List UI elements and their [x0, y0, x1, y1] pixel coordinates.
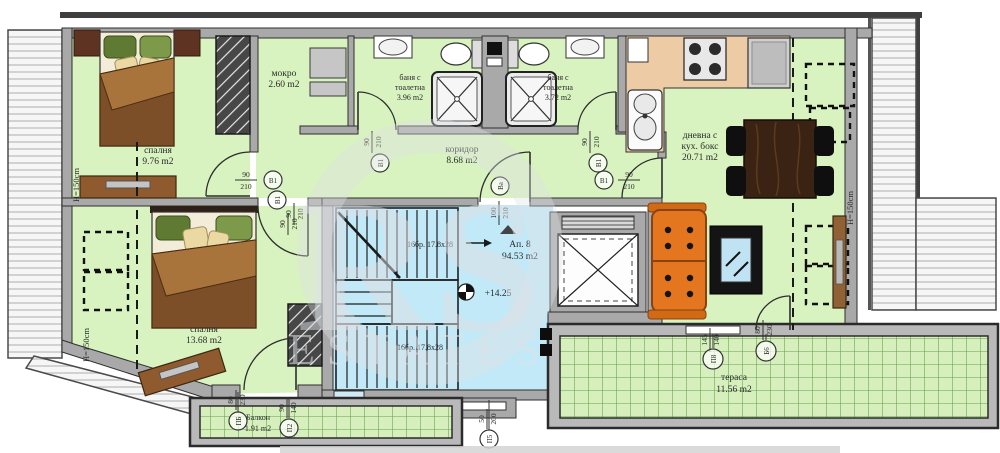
bedroom1-dresser-tv: [106, 181, 150, 188]
svg-text:Б6: Б6: [763, 347, 771, 355]
svg-text:90: 90: [278, 220, 287, 228]
svg-text:П5: П5: [486, 434, 494, 443]
bath1-basin: [379, 39, 407, 55]
svg-text:140: 140: [289, 402, 298, 414]
bedroom2-area: 13.68 m2: [186, 336, 222, 346]
height-note-bedroom2: H=150cm: [81, 328, 91, 362]
svg-text:80: 80: [753, 326, 762, 334]
duct-slot: [487, 58, 502, 66]
wall-bath2-living: [618, 36, 626, 132]
mokro-shelf-b: [310, 82, 346, 96]
kitchen-cabinet: [628, 38, 648, 62]
terrace: [540, 324, 998, 428]
bedroom1-area: 9.76 m2: [142, 157, 173, 167]
mokro-shelves: [310, 48, 346, 96]
svg-text:200: 200: [489, 413, 498, 425]
left-eave-band: [8, 30, 62, 358]
svg-text:230: 230: [765, 324, 774, 336]
mokro-label: мокро: [272, 69, 297, 79]
eave-edge-line: [868, 18, 871, 310]
svg-text:В1: В1: [600, 177, 609, 185]
stove: [684, 38, 726, 80]
mokro-shelf-a: [310, 48, 346, 78]
bedroom2-label: спалня: [190, 325, 218, 335]
terrace-label: тераса: [721, 373, 748, 383]
svg-text:90: 90: [625, 170, 633, 179]
height-note-bedroom1: H=150cm: [71, 168, 81, 202]
floor-plan-page: спалня 9.76 m2 мокро 2.60 m2 баня с тоал…: [0, 0, 1000, 453]
svg-text:90: 90: [242, 170, 250, 179]
bath1-label-2: тоалетна: [395, 83, 425, 92]
svg-text:80: 80: [226, 396, 235, 404]
bath2-label-1: баня с: [547, 73, 569, 82]
terrace-area: 11.56 m2: [716, 385, 752, 395]
fridge-inner: [752, 42, 786, 84]
mokro-area: 2.60 m2: [268, 80, 299, 90]
wall-bedrooms-divider-a: [62, 198, 258, 206]
svg-text:ПБ: ПБ: [235, 416, 243, 425]
living-label-1: дневна с: [683, 131, 718, 141]
height-note-living: H=150cm: [845, 191, 855, 225]
svg-text:145: 145: [700, 334, 709, 346]
right-eave-band: [872, 18, 916, 310]
right-eave-wide-band: [916, 198, 996, 310]
bath2-label-2: тоалетна: [543, 83, 573, 92]
balcony-label: Балкон: [246, 413, 271, 422]
wall-bath-top-a: [300, 126, 358, 134]
sink-faucet: [643, 114, 648, 119]
svg-text:П8: П8: [710, 354, 718, 363]
svg-text:П2: П2: [286, 423, 294, 432]
sideboard-panel: [836, 240, 843, 284]
bath1-label-1: баня с: [399, 73, 421, 82]
sink-bowl-bottom: [634, 116, 656, 140]
bath1-area: 3.96 m2: [397, 93, 423, 102]
bath1-drain: [455, 97, 460, 102]
svg-text:210: 210: [592, 136, 601, 148]
watermark-subtitle: ESTATES: [288, 325, 552, 374]
bedroom1-label: спалня: [144, 146, 172, 156]
elevator-door: [562, 216, 634, 229]
top-boundary-line: [60, 12, 922, 18]
bath2-basin: [571, 39, 599, 55]
bath2-toilet-tank: [508, 40, 518, 68]
bed1-nightstand-left: [74, 30, 100, 56]
terrace-window-p8: [686, 326, 740, 334]
svg-text:230: 230: [238, 394, 247, 406]
wall-bedroom1-mokro: [250, 36, 258, 152]
sink-bowl-top: [634, 94, 656, 114]
svg-text:В1: В1: [595, 158, 603, 167]
svg-text:В1: В1: [269, 177, 278, 185]
bath1-toilet-tank: [472, 40, 482, 68]
svg-text:210: 210: [240, 182, 252, 191]
bed1-pillow-right: [140, 36, 171, 58]
bath2-drain: [529, 97, 534, 102]
floor-plan-drawing: спалня 9.76 m2 мокро 2.60 m2 баня с тоал…: [0, 0, 1000, 453]
watermark-bottom-strip: [280, 446, 840, 453]
svg-text:90: 90: [580, 138, 589, 146]
bath1-toilet-bowl: [441, 43, 471, 65]
bed1-pillow-left: [104, 36, 136, 58]
bath2-area: 3.72 m2: [545, 93, 571, 102]
bedroom1-wardrobe: [216, 36, 250, 134]
svg-text:50: 50: [477, 415, 486, 423]
bed1-nightstand-right: [174, 30, 200, 56]
living-label-2: кух. бокс: [682, 141, 719, 152]
svg-text:90: 90: [277, 404, 286, 412]
dining-table: [744, 120, 816, 198]
balcony-area: 1.91 m2: [245, 424, 271, 433]
wall-mokro-bath1: [348, 36, 354, 126]
living-area: 20.71 m2: [682, 153, 718, 163]
elevator: [550, 212, 646, 316]
sofa-armrest-bottom: [648, 310, 706, 319]
wall-hall-balcony-b: [298, 385, 322, 398]
svg-text:140: 140: [712, 334, 721, 346]
duct-opening: [487, 42, 502, 55]
bath2-toilet-bowl: [519, 43, 549, 65]
svg-text:210: 210: [623, 182, 635, 191]
svg-text:В1: В1: [274, 195, 282, 204]
